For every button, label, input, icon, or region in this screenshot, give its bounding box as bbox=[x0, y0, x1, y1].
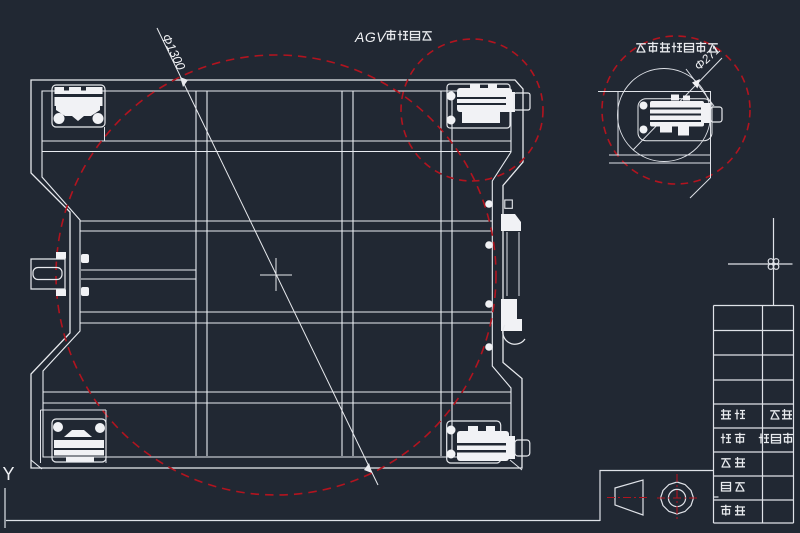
svg-text:AGV: AGV bbox=[354, 29, 387, 45]
svg-text:Y: Y bbox=[3, 464, 15, 484]
